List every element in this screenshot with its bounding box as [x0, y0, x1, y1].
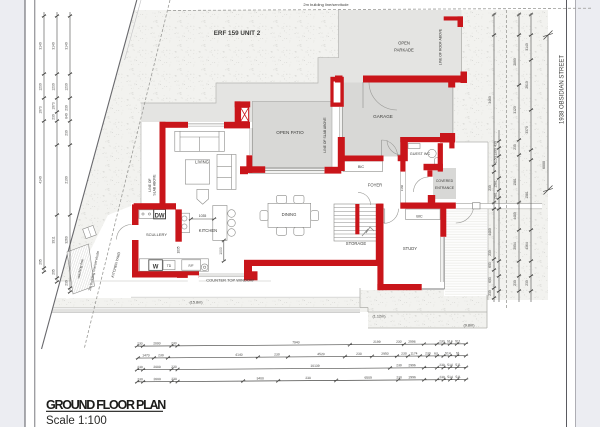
svg-text:1938 OBSIDIAN STREET: 1938 OBSIDIAN STREET [560, 55, 566, 124]
svg-text:2100: 2100 [65, 176, 69, 184]
svg-text:SCULLERY: SCULLERY [146, 232, 167, 237]
svg-text:Scale 1:100: Scale 1:100 [46, 415, 107, 427]
svg-text:1150: 1150 [494, 156, 498, 163]
svg-text:COUNTER TOP WINDOW: COUNTER TOP WINDOW [206, 278, 254, 283]
svg-text:COVERED: COVERED [436, 179, 454, 183]
svg-text:230: 230 [171, 341, 177, 345]
svg-text:BIC: BIC [358, 165, 365, 169]
svg-text:GUEST WC: GUEST WC [410, 152, 431, 156]
svg-text:1581: 1581 [513, 178, 517, 186]
svg-text:(1.12m): (1.12m) [372, 315, 386, 319]
svg-text:4480: 4480 [513, 212, 517, 220]
svg-text:TD: TD [167, 264, 172, 268]
svg-text:4140: 4140 [235, 353, 243, 357]
svg-text:205: 205 [39, 259, 43, 265]
svg-text:230: 230 [65, 130, 69, 136]
svg-text:LIVING: LIVING [195, 160, 209, 165]
svg-text:1073: 1073 [39, 106, 43, 114]
svg-text:230: 230 [137, 365, 143, 369]
svg-text:230: 230 [396, 340, 402, 344]
svg-text:1174: 1174 [410, 351, 417, 355]
svg-text:(15.8m): (15.8m) [189, 301, 203, 305]
svg-text:235: 235 [513, 144, 517, 150]
svg-text:FOYER: FOYER [368, 183, 382, 188]
svg-text:STUDY: STUDY [403, 246, 417, 251]
svg-text:230: 230 [439, 363, 445, 367]
svg-text:KITCHEN: KITCHEN [199, 228, 217, 233]
svg-text:1230: 1230 [39, 83, 43, 91]
svg-text:BIC: BIC [416, 215, 423, 219]
svg-text:230: 230 [137, 341, 143, 345]
svg-text:6000: 6000 [542, 161, 546, 169]
svg-text:OPEN: OPEN [398, 41, 410, 46]
svg-text:1581: 1581 [494, 180, 498, 188]
svg-text:F/F: F/F [188, 264, 193, 268]
svg-text:2000: 2000 [153, 365, 161, 369]
svg-text:4364: 4364 [525, 242, 529, 250]
svg-text:514: 514 [447, 375, 453, 379]
svg-text:430: 430 [494, 141, 498, 147]
svg-text:PARKADE: PARKADE [394, 48, 414, 53]
svg-text:63: 63 [434, 351, 438, 355]
svg-text:SLAB ABOVE: SLAB ABOVE [153, 174, 157, 196]
svg-text:2m building line/servitude: 2m building line/servitude [303, 2, 349, 7]
svg-text:OPEN PATIO: OPEN PATIO [276, 130, 304, 135]
svg-text:1035: 1035 [199, 214, 207, 218]
svg-text:514: 514 [447, 339, 453, 343]
svg-text:1035: 1035 [177, 246, 181, 253]
svg-text:ENTRANCE: ENTRANCE [435, 186, 455, 190]
svg-text:3140: 3140 [525, 43, 529, 51]
svg-text:6509: 6509 [364, 376, 372, 380]
svg-text:1000: 1000 [219, 247, 223, 255]
svg-text:1073: 1073 [52, 102, 56, 110]
svg-text:LINE OF SLAB ABOVE: LINE OF SLAB ABOVE [323, 117, 327, 153]
svg-text:3140: 3140 [65, 42, 69, 50]
svg-text:3460: 3460 [488, 96, 492, 104]
svg-text:511: 511 [455, 363, 460, 367]
svg-text:1300: 1300 [494, 148, 498, 156]
svg-text:1160: 1160 [400, 184, 404, 191]
svg-text:DINING: DINING [282, 212, 297, 217]
svg-text:1581: 1581 [494, 192, 498, 200]
svg-text:230: 230 [305, 376, 311, 380]
svg-text:4480: 4480 [488, 228, 492, 236]
svg-text:ERF 159 UNIT 2: ERF 159 UNIT 2 [214, 30, 261, 37]
svg-text:STORAGE: STORAGE [346, 241, 367, 246]
svg-text:2910: 2910 [525, 81, 529, 89]
svg-text:230: 230 [488, 290, 492, 296]
svg-text:230: 230 [137, 377, 143, 381]
svg-text:4520: 4520 [317, 352, 325, 356]
svg-text:205: 205 [52, 269, 56, 275]
svg-text:2000: 2000 [153, 341, 161, 345]
svg-text:230: 230 [439, 375, 445, 379]
svg-text:603: 603 [488, 262, 492, 268]
svg-text:2996: 2996 [408, 375, 416, 379]
svg-text:3269: 3269 [65, 236, 69, 244]
svg-text:230: 230 [513, 280, 517, 286]
svg-text:3140: 3140 [52, 42, 56, 50]
svg-text:230: 230 [171, 365, 177, 369]
svg-text:LINE OF ROOF ABOVE: LINE OF ROOF ABOVE [439, 28, 443, 65]
svg-text:4140: 4140 [39, 176, 43, 184]
svg-text:GROUND FLOOR PLAN: GROUND FLOOR PLAN [46, 398, 166, 412]
svg-text:3400: 3400 [256, 376, 264, 380]
svg-text:514: 514 [445, 351, 451, 355]
svg-text:(9.8m): (9.8m) [464, 324, 476, 328]
svg-text:2890: 2890 [513, 58, 517, 66]
svg-text:1230: 1230 [65, 83, 69, 91]
svg-text:511: 511 [455, 339, 460, 343]
svg-text:230: 230 [274, 352, 280, 356]
svg-text:DW: DW [155, 213, 165, 219]
svg-text:2996: 2996 [408, 363, 416, 367]
svg-text:2996: 2996 [408, 340, 416, 344]
svg-text:10139: 10139 [310, 364, 319, 368]
svg-text:230: 230 [488, 250, 492, 256]
svg-text:2954: 2954 [513, 242, 517, 250]
svg-text:W: W [153, 264, 159, 270]
svg-text:230: 230 [52, 114, 56, 120]
svg-text:230: 230 [158, 353, 164, 357]
svg-text:230: 230 [356, 352, 362, 356]
svg-text:511: 511 [455, 375, 460, 379]
svg-text:7940: 7940 [292, 340, 300, 344]
svg-text:3120: 3120 [513, 106, 517, 114]
svg-text:3140: 3140 [39, 42, 43, 50]
svg-text:3911: 3911 [52, 236, 56, 243]
svg-text:230: 230 [65, 105, 69, 111]
svg-text:514: 514 [447, 363, 453, 367]
svg-text:1581: 1581 [525, 191, 529, 199]
svg-text:230: 230 [439, 339, 445, 343]
svg-text:51: 51 [456, 351, 460, 355]
svg-text:1230: 1230 [52, 83, 56, 91]
svg-text:230: 230 [396, 375, 402, 379]
svg-text:LINE OF: LINE OF [148, 178, 152, 191]
svg-text:1470: 1470 [142, 353, 150, 357]
svg-text:2950: 2950 [381, 352, 389, 356]
svg-text:840: 840 [65, 113, 69, 119]
svg-text:603: 603 [488, 277, 492, 283]
svg-text:230: 230 [525, 280, 529, 286]
svg-text:230: 230 [396, 363, 402, 367]
svg-text:230: 230 [171, 377, 177, 381]
svg-text:2199: 2199 [373, 340, 381, 344]
svg-text:230: 230 [65, 280, 69, 286]
svg-text:2000: 2000 [153, 377, 161, 381]
svg-text:230: 230 [401, 352, 407, 356]
svg-text:GARAGE: GARAGE [373, 114, 393, 119]
svg-text:3370: 3370 [525, 126, 529, 134]
svg-text:230: 230 [425, 351, 431, 355]
svg-text:230: 230 [488, 185, 492, 191]
